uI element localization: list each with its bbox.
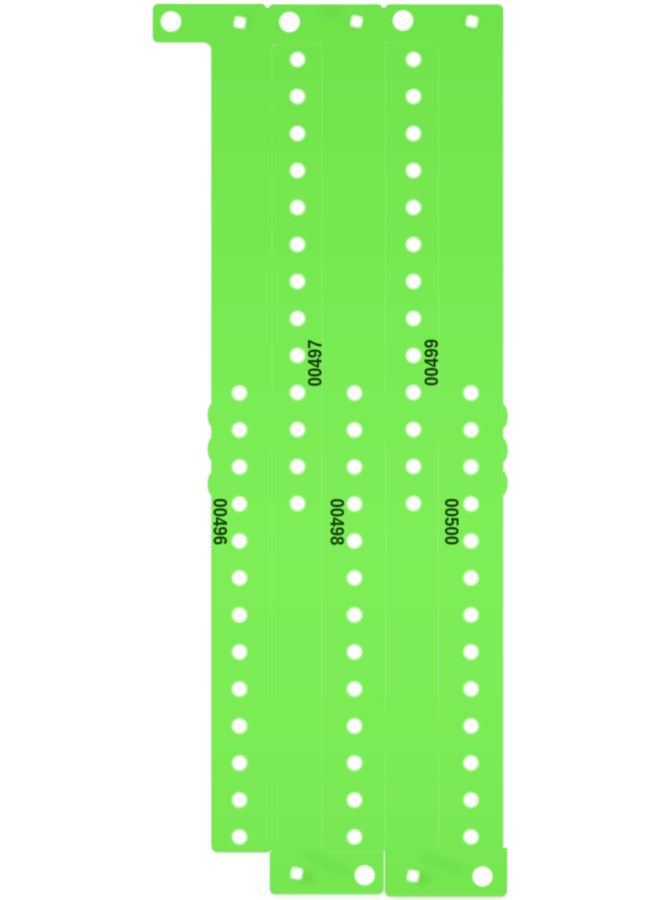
svg-text:00496: 00496 [209, 498, 231, 545]
svg-text:00498: 00498 [326, 498, 348, 545]
svg-text:00499: 00499 [421, 339, 443, 386]
svg-text:00500: 00500 [440, 498, 462, 545]
svg-text:00497: 00497 [305, 339, 327, 386]
